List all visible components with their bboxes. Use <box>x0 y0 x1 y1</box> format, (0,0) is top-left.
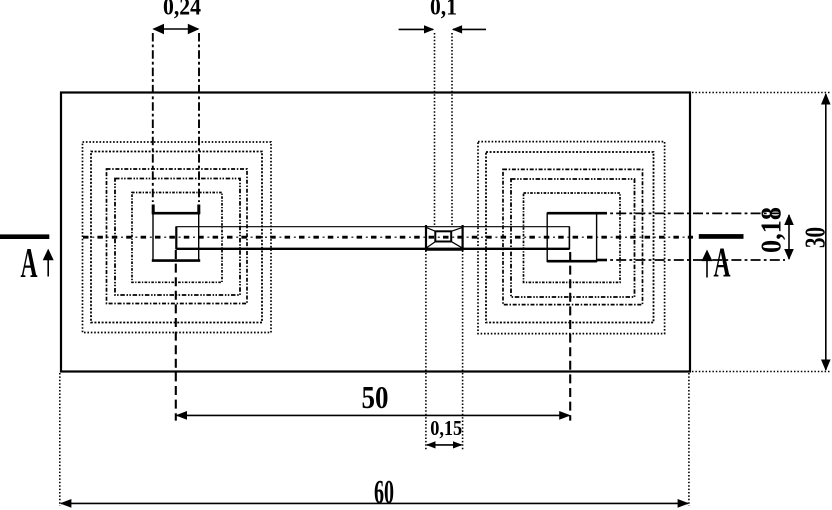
svg-text:50: 50 <box>362 379 389 415</box>
svg-text:0,1: 0,1 <box>430 0 457 21</box>
svg-text:A: A <box>21 241 38 287</box>
svg-text:0,15: 0,15 <box>430 416 462 440</box>
svg-text:0,24: 0,24 <box>163 0 201 21</box>
svg-text:30: 30 <box>800 227 832 248</box>
svg-text:A: A <box>714 241 731 287</box>
svg-text:0,18: 0,18 <box>757 207 788 253</box>
svg-text:60: 60 <box>374 474 394 510</box>
